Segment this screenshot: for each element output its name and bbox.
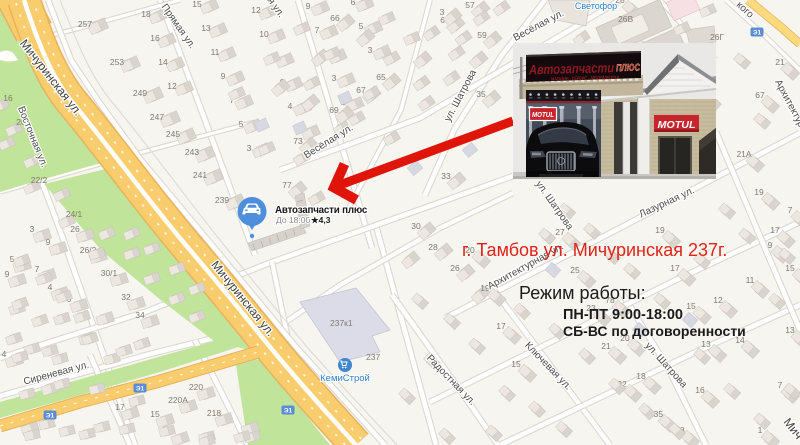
svg-text:15: 15 [511,359,521,369]
svg-text:Э1: Э1 [753,30,762,37]
svg-text:17: 17 [115,402,125,412]
svg-text:18: 18 [636,371,646,381]
svg-text:Светофор: Светофор [575,1,617,11]
svg-text:249: 249 [133,88,147,98]
svg-text:9: 9 [221,71,226,81]
svg-text:г. Тамбов ул. Мичуринская 237г: г. Тамбов ул. Мичуринская 237г. [462,240,727,260]
svg-text:16: 16 [150,33,160,43]
svg-text:245: 245 [166,129,180,139]
svg-text:26: 26 [450,263,460,273]
svg-text:12: 12 [713,295,723,305]
svg-text:ПЛЮС: ПЛЮС [616,63,641,75]
svg-text:7: 7 [35,264,40,274]
svg-text:15: 15 [192,0,202,9]
svg-text:Э1: Э1 [136,386,145,393]
svg-text:7: 7 [315,25,320,35]
svg-text:4: 4 [48,282,53,292]
svg-text:7: 7 [788,205,793,215]
svg-text:237: 237 [366,352,380,362]
svg-text:MOTUL: MOTUL [658,120,696,131]
svg-text:67: 67 [755,90,765,100]
svg-text:16: 16 [695,385,705,395]
svg-text:65: 65 [376,72,386,82]
svg-text:28: 28 [428,242,438,252]
svg-text:26: 26 [70,224,80,234]
svg-text:5: 5 [239,119,244,129]
svg-text:21А: 21А [736,149,751,159]
svg-text:10: 10 [259,29,269,39]
svg-text:21: 21 [775,57,785,67]
svg-text:241: 241 [193,170,207,180]
svg-text:15: 15 [686,301,696,311]
svg-text:257: 257 [78,19,92,29]
svg-text:30/1: 30/1 [101,268,118,278]
svg-text:17: 17 [770,225,780,235]
svg-text:9: 9 [5,269,10,279]
svg-text:12: 12 [167,81,177,91]
svg-text:3: 3 [440,7,445,17]
svg-text:30: 30 [411,221,421,231]
svg-text:4: 4 [288,101,293,111]
svg-text:17: 17 [496,321,506,331]
svg-text:19: 19 [655,225,665,235]
svg-text:9: 9 [306,1,311,11]
svg-text:MOTUL: MOTUL [532,110,554,119]
svg-text:26В: 26В [618,14,633,24]
svg-text:243: 243 [185,147,199,157]
svg-text:220: 220 [189,382,203,392]
svg-text:Э1: Э1 [46,413,55,420]
svg-text:33: 33 [441,171,451,181]
svg-text:57: 57 [465,0,475,10]
svg-text:3: 3 [332,73,337,83]
svg-text:22/2: 22/2 [31,175,48,185]
svg-text:СБ-ВС по договоренности: СБ-ВС по договоренности [563,323,746,339]
svg-text:218: 218 [207,408,221,418]
svg-text:35: 35 [476,89,486,99]
svg-text:3: 3 [247,143,252,153]
svg-text:9: 9 [768,240,773,250]
svg-text:34: 34 [135,310,145,320]
svg-text:11: 11 [746,275,755,285]
svg-text:32: 32 [121,292,131,302]
svg-text:247: 247 [150,112,164,122]
svg-text:5: 5 [359,21,364,31]
svg-text:9: 9 [46,237,51,247]
svg-text:19: 19 [754,187,764,197]
svg-text:Режим работы:: Режим работы: [519,283,646,303]
svg-text:13: 13 [701,339,711,349]
svg-text:25: 25 [570,265,580,275]
svg-text:237к1: 237к1 [330,318,353,328]
svg-text:11: 11 [211,47,220,57]
svg-text:17: 17 [670,263,680,273]
svg-text:Автозапчасти: Автозапчасти [528,60,615,77]
svg-text:26Г: 26Г [710,32,724,42]
svg-text:3: 3 [368,45,373,55]
svg-text:73: 73 [293,136,303,146]
svg-text:До 18:00: До 18:00 [276,215,310,225]
svg-text:69: 69 [329,105,339,115]
svg-text:6: 6 [351,0,356,7]
svg-text:16: 16 [3,93,13,103]
svg-text:12: 12 [251,5,261,15]
svg-text:59: 59 [477,30,487,40]
svg-text:14: 14 [158,57,168,67]
svg-text:15: 15 [150,409,160,419]
svg-text:3: 3 [30,224,35,234]
svg-text:Э1: Э1 [284,408,293,415]
svg-text:4: 4 [2,349,7,359]
svg-text:ПН-ПТ 9:00-18:00: ПН-ПТ 9:00-18:00 [563,307,683,323]
svg-text:18: 18 [141,9,151,19]
svg-text:13: 13 [785,325,795,335]
svg-text:220А: 220А [168,395,188,405]
svg-text:77: 77 [282,180,292,190]
svg-text:КемиСтрой: КемиСтрой [320,373,370,384]
svg-text:7: 7 [778,380,783,390]
svg-text:24/1: 24/1 [66,209,83,219]
svg-text:21: 21 [601,341,611,351]
svg-text:13: 13 [201,23,211,33]
svg-text:15: 15 [785,263,795,273]
svg-text:239: 239 [215,195,229,205]
svg-text:★4,3: ★4,3 [311,215,331,225]
svg-text:253: 253 [110,57,124,67]
svg-text:66: 66 [330,13,340,23]
svg-text:5: 5 [10,254,15,264]
